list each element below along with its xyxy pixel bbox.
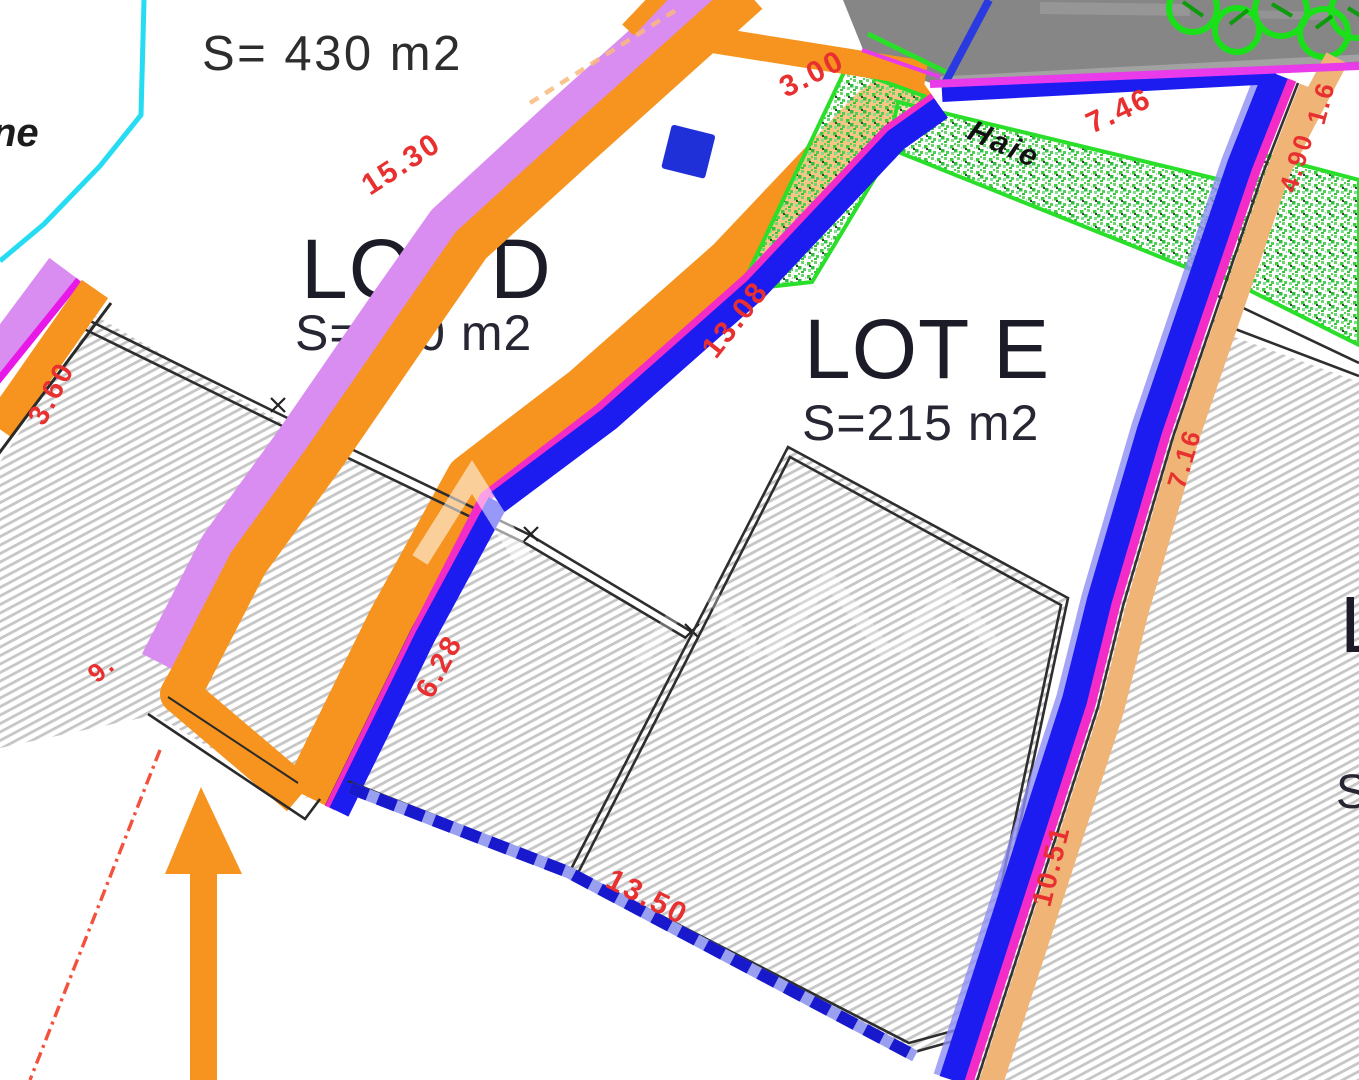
svg-text:S: S <box>1336 766 1359 819</box>
svg-text:L: L <box>1340 580 1359 669</box>
svg-text:S= 430 m2: S= 430 m2 <box>202 27 463 81</box>
svg-text:S=215 m2: S=215 m2 <box>802 395 1039 451</box>
svg-text:ne: ne <box>0 111 39 155</box>
svg-text:LOT E: LOT E <box>804 302 1050 396</box>
